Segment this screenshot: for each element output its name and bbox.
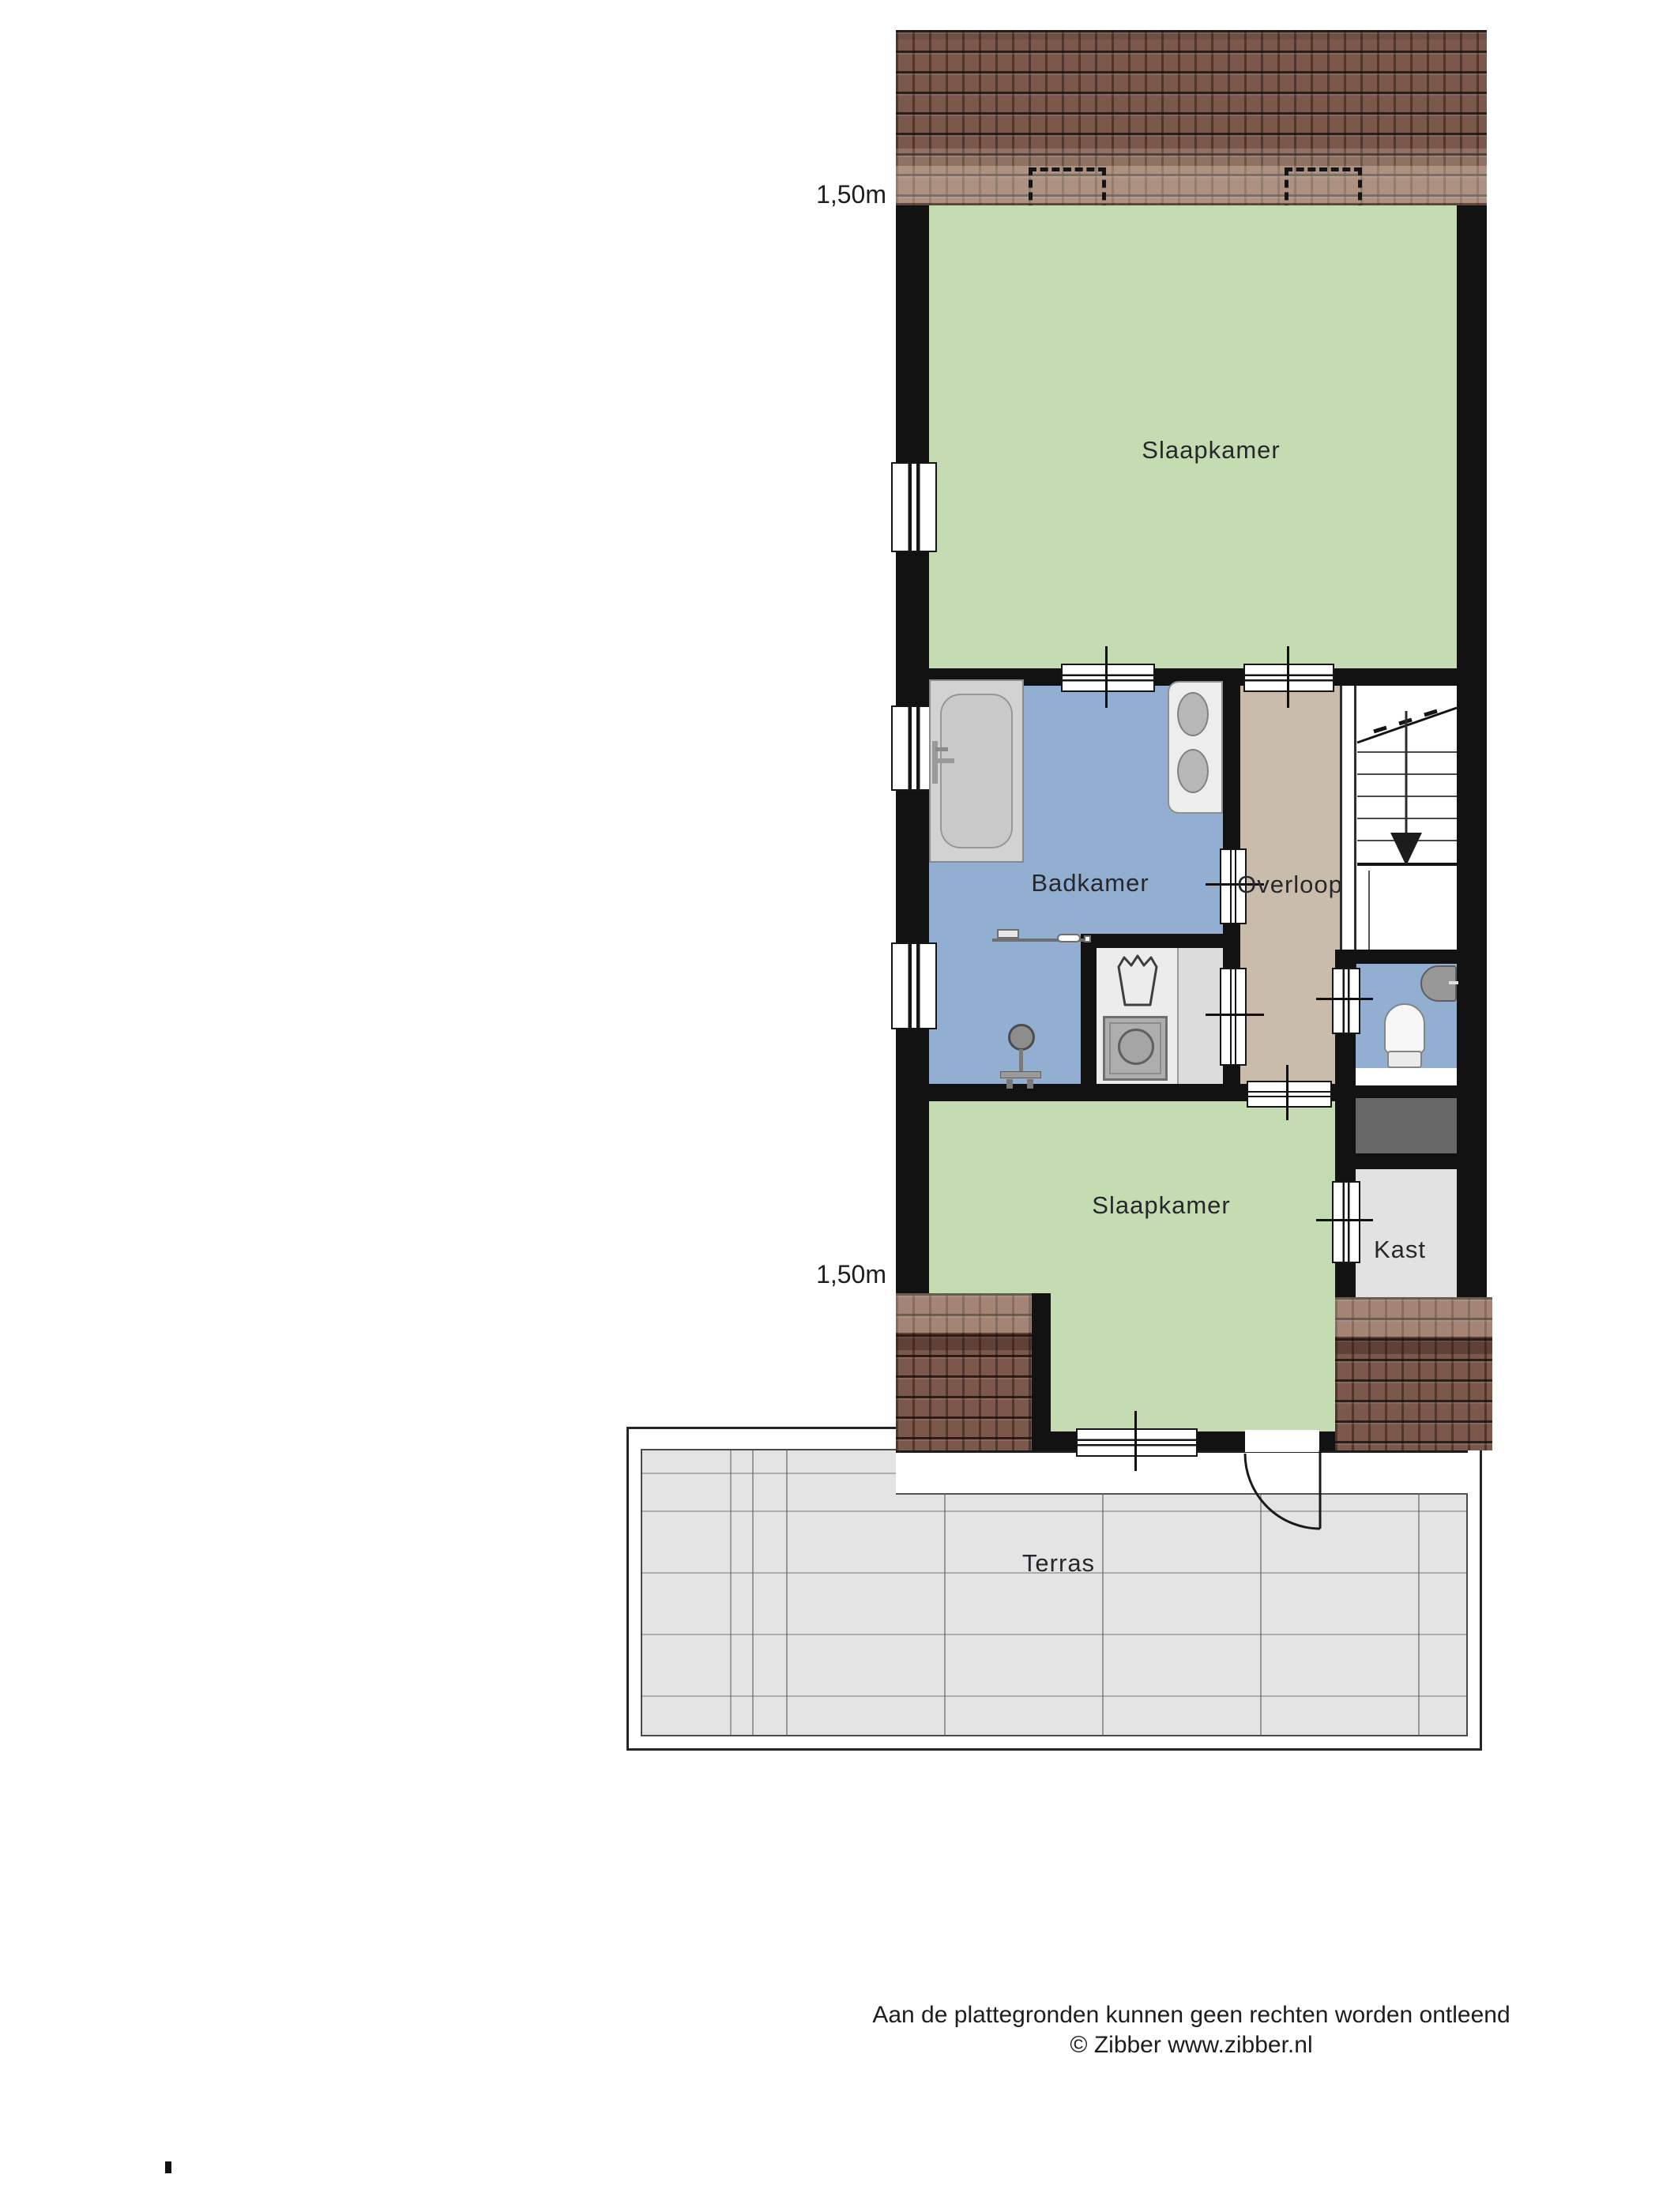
room-label-kast: Kast — [1374, 1236, 1426, 1264]
room-label-badkamer: Badkamer — [1031, 869, 1149, 897]
wall-block-bottom — [1335, 1153, 1487, 1169]
house-threshold — [896, 1450, 1468, 1495]
window-icon — [891, 462, 937, 552]
wc-floor-strip — [1356, 1068, 1457, 1085]
towel-radiator-icon — [1084, 935, 1091, 942]
toilet-icon — [1384, 1003, 1425, 1054]
roof-shade — [896, 1293, 1032, 1450]
room-slaapkamer-bottom — [1051, 1293, 1335, 1431]
dimension-tick — [1105, 646, 1108, 708]
wall-closet-top — [1081, 934, 1223, 948]
door-arc-icon — [1217, 1422, 1375, 1564]
wall-wc-bottom — [1335, 1085, 1487, 1098]
window-icon — [1076, 1428, 1198, 1457]
room-kast — [1356, 1169, 1457, 1297]
wall-closet-left — [1081, 948, 1097, 1084]
terrace-grid-line — [730, 1449, 732, 1736]
bath-faucet-icon — [935, 758, 954, 763]
shower-icon — [1027, 1079, 1033, 1089]
stairs-icon — [1342, 686, 1457, 980]
hand-basin-icon — [1449, 981, 1458, 984]
bathtub-inner — [940, 694, 1013, 848]
dimension-tick — [1206, 1014, 1264, 1016]
toilet-icon — [1387, 1051, 1422, 1068]
window-icon — [1247, 1081, 1332, 1108]
washbasin-icon — [1177, 749, 1209, 793]
closet-cabinet — [1177, 948, 1223, 1084]
towel-radiator-icon — [997, 929, 1019, 939]
shower-icon — [1000, 1071, 1041, 1078]
towel-radiator-icon — [1057, 934, 1081, 942]
shower-icon — [1008, 1024, 1035, 1051]
dimension-label-bottom: 1,50m — [705, 1260, 886, 1289]
floorplan-page: Terras — [0, 0, 1659, 2212]
room-label-slaapkamer-bottom: Slaapkamer — [1092, 1191, 1230, 1220]
page-mark — [165, 2161, 171, 2173]
footer-disclaimer: Aan de plattegronden kunnen geen rechten… — [872, 2002, 1510, 2029]
dimension-tick — [1316, 998, 1373, 1000]
room-label-terras: Terras — [1022, 1549, 1095, 1578]
storage-block — [1356, 1098, 1457, 1153]
bath-faucet-icon — [935, 747, 948, 751]
footer-copyright: © Zibber www.zibber.nl — [1070, 2032, 1312, 2059]
window-icon — [891, 942, 937, 1029]
dimension-label-top: 1,50m — [705, 180, 886, 209]
wall-slaapkamer2-notch — [1032, 1293, 1051, 1431]
window-icon — [1061, 664, 1155, 692]
door-icon — [1332, 1181, 1360, 1263]
roof-shade — [896, 30, 1487, 205]
door-icon — [1220, 968, 1247, 1066]
wall-right — [1457, 205, 1487, 1297]
dimension-tick — [1134, 1411, 1137, 1471]
dimension-tick — [1286, 1065, 1288, 1120]
room-label-slaapkamer-top: Slaapkamer — [1142, 436, 1280, 465]
dimension-tick — [1287, 646, 1289, 708]
dimension-tick — [1316, 1219, 1373, 1221]
shower-icon — [1006, 1079, 1013, 1089]
laundry-basket-icon — [1112, 954, 1161, 1008]
washbasin-icon — [1177, 692, 1209, 736]
washing-machine-drum-icon — [1118, 1029, 1154, 1065]
room-label-overloop: Overloop — [1237, 871, 1343, 899]
roof-top-icon — [896, 30, 1487, 205]
roof-lower-left-icon — [896, 1293, 1032, 1450]
